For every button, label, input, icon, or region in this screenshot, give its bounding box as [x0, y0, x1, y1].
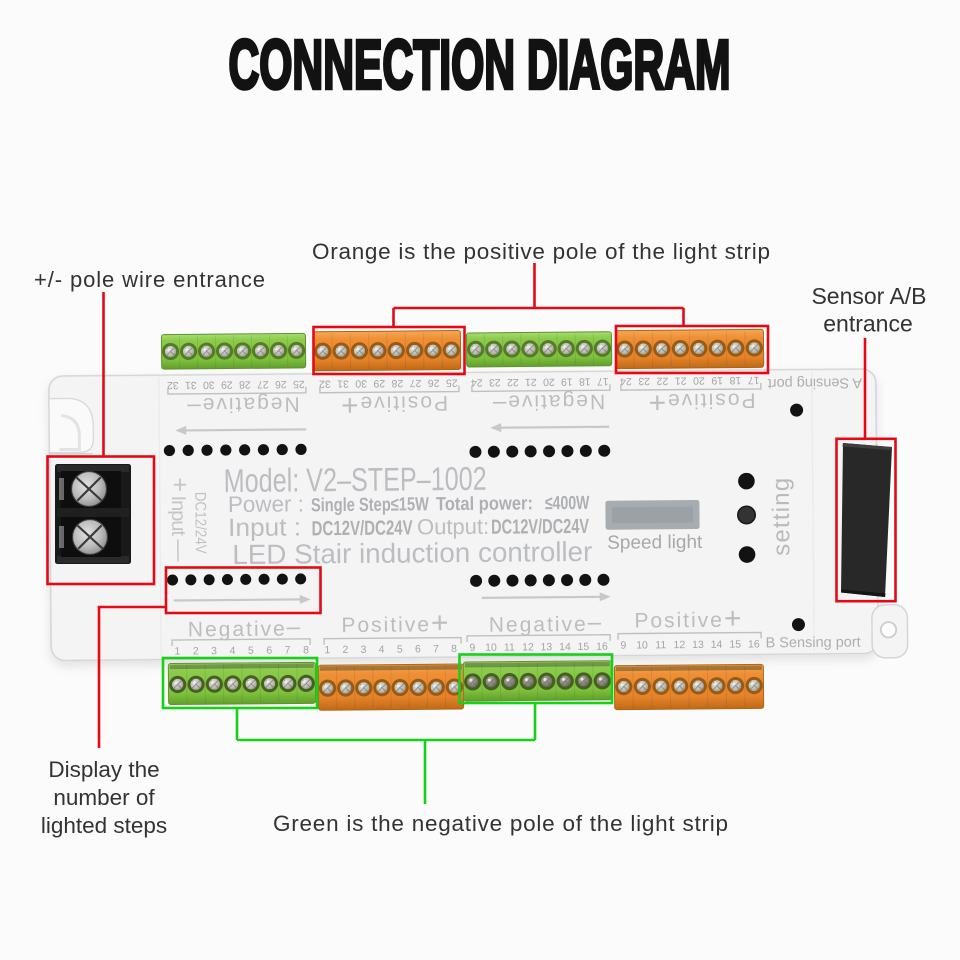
svg-text:9: 9 — [620, 640, 626, 652]
svg-text:25: 25 — [293, 378, 305, 390]
svg-text:19: 19 — [561, 376, 573, 388]
svg-text:14: 14 — [711, 639, 723, 651]
svg-text:20: 20 — [543, 376, 555, 388]
svg-text:24: 24 — [620, 375, 632, 387]
svg-text:10: 10 — [636, 639, 648, 651]
svg-text:30: 30 — [355, 377, 367, 389]
svg-text:number of: number of — [53, 785, 155, 810]
svg-text:26: 26 — [275, 378, 287, 390]
svg-text:11: 11 — [655, 639, 666, 651]
svg-text:4: 4 — [379, 644, 385, 656]
svg-text:Orange is the positive pole of: Orange is the positive pole of the light… — [312, 239, 770, 264]
svg-text:22: 22 — [507, 376, 519, 388]
svg-text:22: 22 — [656, 375, 668, 387]
svg-text:31: 31 — [185, 379, 197, 391]
svg-text:12: 12 — [522, 641, 534, 653]
svg-text:26: 26 — [428, 377, 440, 389]
svg-text:23: 23 — [489, 376, 501, 388]
svg-text:18: 18 — [579, 375, 591, 387]
svg-text:27: 27 — [409, 377, 421, 389]
svg-text:Negative–: Negative– — [185, 392, 299, 420]
svg-text:1: 1 — [174, 645, 180, 657]
svg-text:8: 8 — [451, 643, 457, 655]
svg-text:13: 13 — [692, 639, 704, 651]
svg-text:31: 31 — [337, 377, 349, 389]
svg-text:13: 13 — [540, 641, 552, 653]
svg-text:5: 5 — [248, 645, 254, 657]
svg-text:Single Step≤15W: Single Step≤15W — [311, 494, 429, 516]
svg-text:DC12/24V: DC12/24V — [191, 492, 209, 555]
svg-text:11: 11 — [504, 642, 515, 654]
svg-text:23: 23 — [638, 375, 650, 387]
svg-text:21: 21 — [525, 376, 537, 388]
svg-text:A Sensing port: A Sensing port — [768, 374, 862, 391]
svg-text:7: 7 — [285, 645, 291, 657]
svg-text:14: 14 — [559, 641, 571, 653]
svg-text:CONNECTION DIAGRAM: CONNECTION DIAGRAM — [229, 26, 731, 104]
svg-text:19: 19 — [711, 374, 723, 386]
svg-text:Sensor A/B: Sensor A/B — [811, 283, 926, 309]
svg-text:18: 18 — [729, 374, 741, 386]
svg-text:Negative–: Negative– — [188, 613, 302, 641]
svg-text:3: 3 — [211, 645, 217, 657]
svg-text:lighted steps: lighted steps — [41, 813, 167, 838]
svg-text:Total power:: Total power: — [436, 493, 533, 515]
svg-text:B Sensing port: B Sensing port — [765, 635, 860, 652]
svg-text:Display the: Display the — [48, 757, 159, 782]
svg-text:Speed light: Speed light — [607, 532, 703, 554]
svg-text:6: 6 — [415, 643, 421, 655]
svg-text:20: 20 — [693, 374, 705, 386]
svg-text:30: 30 — [203, 379, 215, 391]
svg-text:21: 21 — [675, 375, 687, 387]
svg-text:32: 32 — [319, 378, 331, 390]
svg-text:16: 16 — [748, 638, 760, 650]
svg-text:2: 2 — [193, 645, 199, 657]
svg-text:≤400W: ≤400W — [545, 493, 590, 514]
svg-text:10: 10 — [485, 642, 497, 654]
svg-text:Output:: Output: — [417, 514, 489, 540]
svg-text:15: 15 — [729, 639, 741, 651]
svg-text:LED Stair induction controller: LED Stair induction controller — [232, 536, 592, 570]
svg-text:1: 1 — [324, 644, 330, 656]
svg-text:17: 17 — [597, 375, 609, 387]
svg-text:25: 25 — [446, 377, 458, 389]
svg-text:3: 3 — [360, 644, 366, 656]
svg-text:4: 4 — [230, 645, 236, 657]
svg-text:7: 7 — [433, 643, 439, 655]
svg-text:28: 28 — [391, 377, 403, 389]
svg-text:Green is the negative pole of: Green is the negative pole of the light … — [273, 811, 728, 836]
svg-text:setting: setting — [768, 477, 796, 556]
svg-text:24: 24 — [471, 376, 483, 388]
svg-text:9: 9 — [469, 642, 475, 654]
svg-text:12: 12 — [673, 639, 685, 651]
svg-text:17: 17 — [748, 374, 760, 386]
svg-text:6: 6 — [266, 645, 272, 657]
svg-text:5: 5 — [397, 644, 403, 656]
svg-text:2: 2 — [342, 644, 348, 656]
svg-text:+/- pole wire entrance: +/- pole wire entrance — [34, 267, 265, 292]
svg-text:16: 16 — [596, 641, 608, 653]
svg-text:15: 15 — [577, 641, 589, 653]
svg-text:29: 29 — [221, 379, 233, 391]
svg-text:entrance: entrance — [823, 311, 913, 337]
svg-text:29: 29 — [373, 377, 385, 389]
svg-text:Negative–: Negative– — [491, 390, 605, 418]
svg-text:28: 28 — [239, 378, 251, 390]
svg-text:27: 27 — [257, 378, 269, 390]
svg-text:8: 8 — [303, 644, 309, 656]
svg-text:Negative–: Negative– — [489, 609, 603, 637]
svg-text:32: 32 — [167, 379, 179, 391]
